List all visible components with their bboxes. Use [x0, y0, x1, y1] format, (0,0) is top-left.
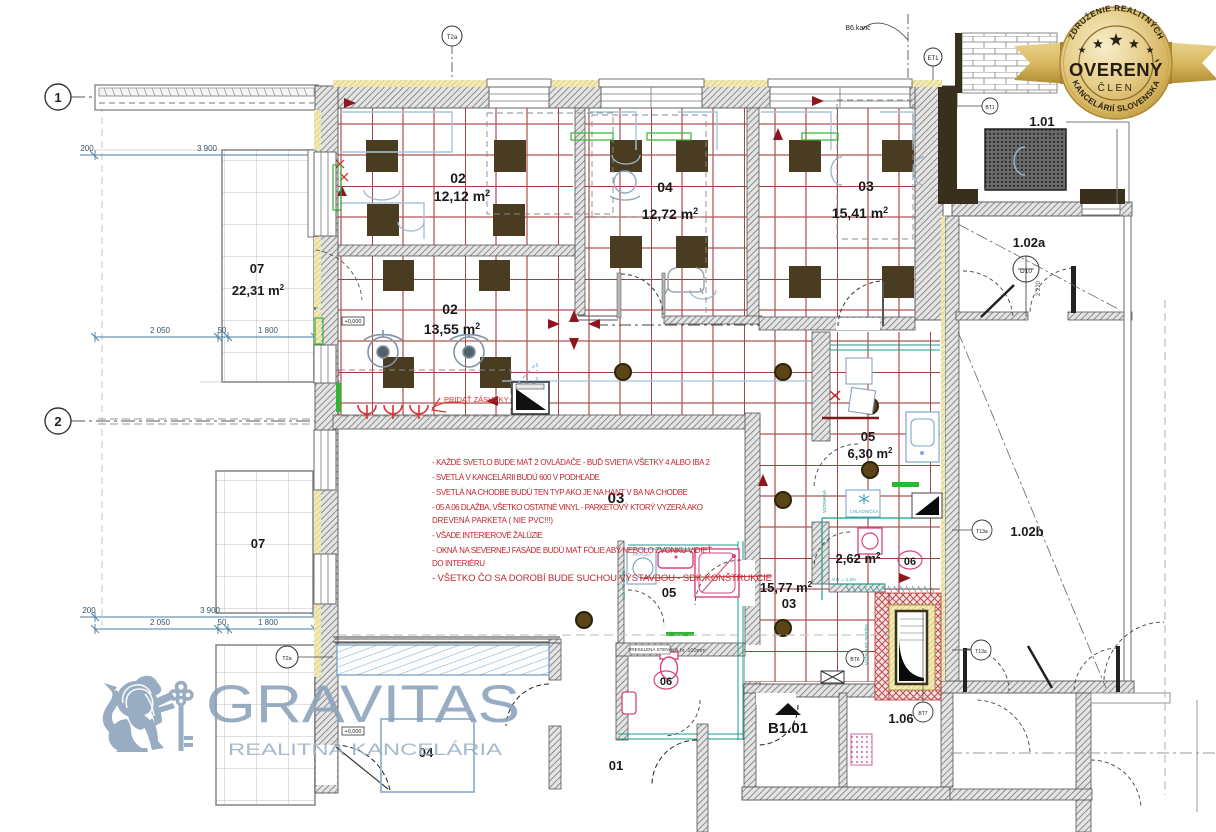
svg-text:1 800: 1 800	[258, 326, 279, 335]
svg-text:1.02b: 1.02b	[1010, 524, 1043, 539]
svg-text:BT7: BT7	[918, 711, 927, 717]
svg-text:12,12 m2: 12,12 m2	[434, 188, 490, 204]
svg-text:BT6: BT6	[850, 657, 859, 663]
svg-text:T2a: T2a	[447, 35, 458, 41]
svg-text:+0,000: +0,000	[345, 319, 362, 325]
svg-text:1.01: 1.01	[1029, 114, 1054, 129]
svg-text:06: 06	[660, 676, 672, 688]
svg-text:07: 07	[250, 261, 264, 276]
svg-text:01: 01	[609, 758, 623, 773]
svg-text:07: 07	[251, 536, 265, 551]
svg-text:2 050: 2 050	[150, 618, 171, 627]
svg-text:PRESKLENÁ STENA: PRESKLENÁ STENA	[628, 646, 671, 652]
svg-text:22,31 m2: 22,31 m2	[232, 283, 285, 298]
svg-text:PRIDAŤ ZÁSUVKY: PRIDAŤ ZÁSUVKY	[444, 395, 509, 404]
svg-text:- VŠETKO ČO SA DOROBÍ BUDE SUC: - VŠETKO ČO SA DOROBÍ BUDE SUCHOU VÝSTAV…	[432, 573, 772, 584]
svg-text:CHLADNIČKA: CHLADNIČKA	[849, 508, 878, 514]
svg-text:VSTAVANÁ: VSTAVANÁ	[821, 490, 827, 513]
svg-text:DO INTERIÉRU: DO INTERIÉRU	[432, 559, 485, 568]
svg-text:05: 05	[662, 585, 676, 600]
svg-text:2: 2	[54, 414, 61, 429]
svg-text:02: 02	[450, 170, 466, 186]
svg-text:02: 02	[442, 301, 458, 317]
svg-text:- VŠADE INTERIEROVÉ ŽALÚZIE: - VŠADE INTERIEROVÉ ŽALÚZIE	[432, 531, 543, 540]
svg-text:03: 03	[858, 178, 874, 194]
svg-text:- 05 A 06 DLAŽBA, VŠETKO OSTAT: - 05 A 06 DLAŽBA, VŠETKO OSTATNÉ VINYL -…	[432, 503, 703, 512]
svg-text:04: 04	[657, 179, 673, 195]
svg-text:V.O. = 1,2m: V.O. = 1,2m	[832, 577, 856, 582]
svg-text:ET1: ET1	[927, 56, 939, 62]
svg-text:- OKNÁ NA SEVERNEJ FASÁDE BUDÚ: - OKNÁ NA SEVERNEJ FASÁDE BUDÚ MAŤ FÓLIE…	[432, 546, 712, 555]
svg-text:B6.kanc: B6.kanc	[845, 25, 871, 32]
svg-text:13,55 m2: 13,55 m2	[424, 321, 480, 337]
svg-text:T13a: T13a	[976, 529, 988, 535]
svg-text:BT1: BT1	[985, 105, 994, 111]
svg-text:ČLEN: ČLEN	[1098, 81, 1135, 94]
svg-text:DREVENÁ PARKETA ( NIE PVC!!!): DREVENÁ PARKETA ( NIE PVC!!!)	[432, 516, 553, 525]
svg-text:2 050: 2 050	[150, 326, 171, 335]
svg-text:T2a: T2a	[282, 656, 292, 662]
svg-text:15,41 m2: 15,41 m2	[832, 205, 888, 221]
svg-text:3 900: 3 900	[200, 606, 221, 615]
svg-text:OVERENÝ: OVERENÝ	[1069, 59, 1163, 80]
svg-text:50: 50	[218, 618, 227, 627]
svg-text:05: 05	[861, 429, 875, 444]
svg-text:- SVETLÁ NA CHODBE BUDÚ TEN TY: - SVETLÁ NA CHODBE BUDÚ TEN TYP AKO JE N…	[432, 488, 688, 497]
svg-text:3 900: 3 900	[197, 144, 218, 153]
svg-text:1: 1	[54, 90, 61, 105]
svg-text:1.06: 1.06	[888, 711, 913, 726]
svg-text:- KAŽDÉ SVETLO BUDE MAŤ 2 OVLÁ: - KAŽDÉ SVETLO BUDE MAŤ 2 OVLÁDAČE - BUĎ…	[432, 458, 711, 467]
svg-text:REALITNÁ KANCELÁRIA: REALITNÁ KANCELÁRIA	[228, 740, 503, 759]
svg-text:6,30 m2: 6,30 m2	[848, 446, 893, 461]
svg-text:200: 200	[82, 606, 96, 615]
svg-text:1 800: 1 800	[258, 618, 279, 627]
svg-text:12,72 m2: 12,72 m2	[642, 206, 698, 222]
svg-text:03: 03	[782, 596, 796, 611]
svg-text:- SVETLÁ V KANCELÁRII BUDÚ 600: - SVETLÁ V KANCELÁRII BUDÚ 600 V PODHĽAD…	[432, 473, 600, 482]
svg-text:GRAVITAS: GRAVITAS	[206, 675, 520, 734]
svg-text:50: 50	[218, 326, 227, 335]
svg-text:2 220: 2 220	[1036, 280, 1042, 296]
svg-text:2,62 m2: 2,62 m2	[836, 551, 881, 566]
svg-text:D10: D10	[1020, 268, 1032, 275]
svg-text:1.02a: 1.02a	[1013, 235, 1046, 250]
svg-text:B1.01: B1.01	[768, 720, 808, 737]
svg-text:T13a: T13a	[975, 649, 987, 655]
svg-text:06: 06	[904, 556, 916, 568]
svg-text:200: 200	[80, 144, 94, 153]
